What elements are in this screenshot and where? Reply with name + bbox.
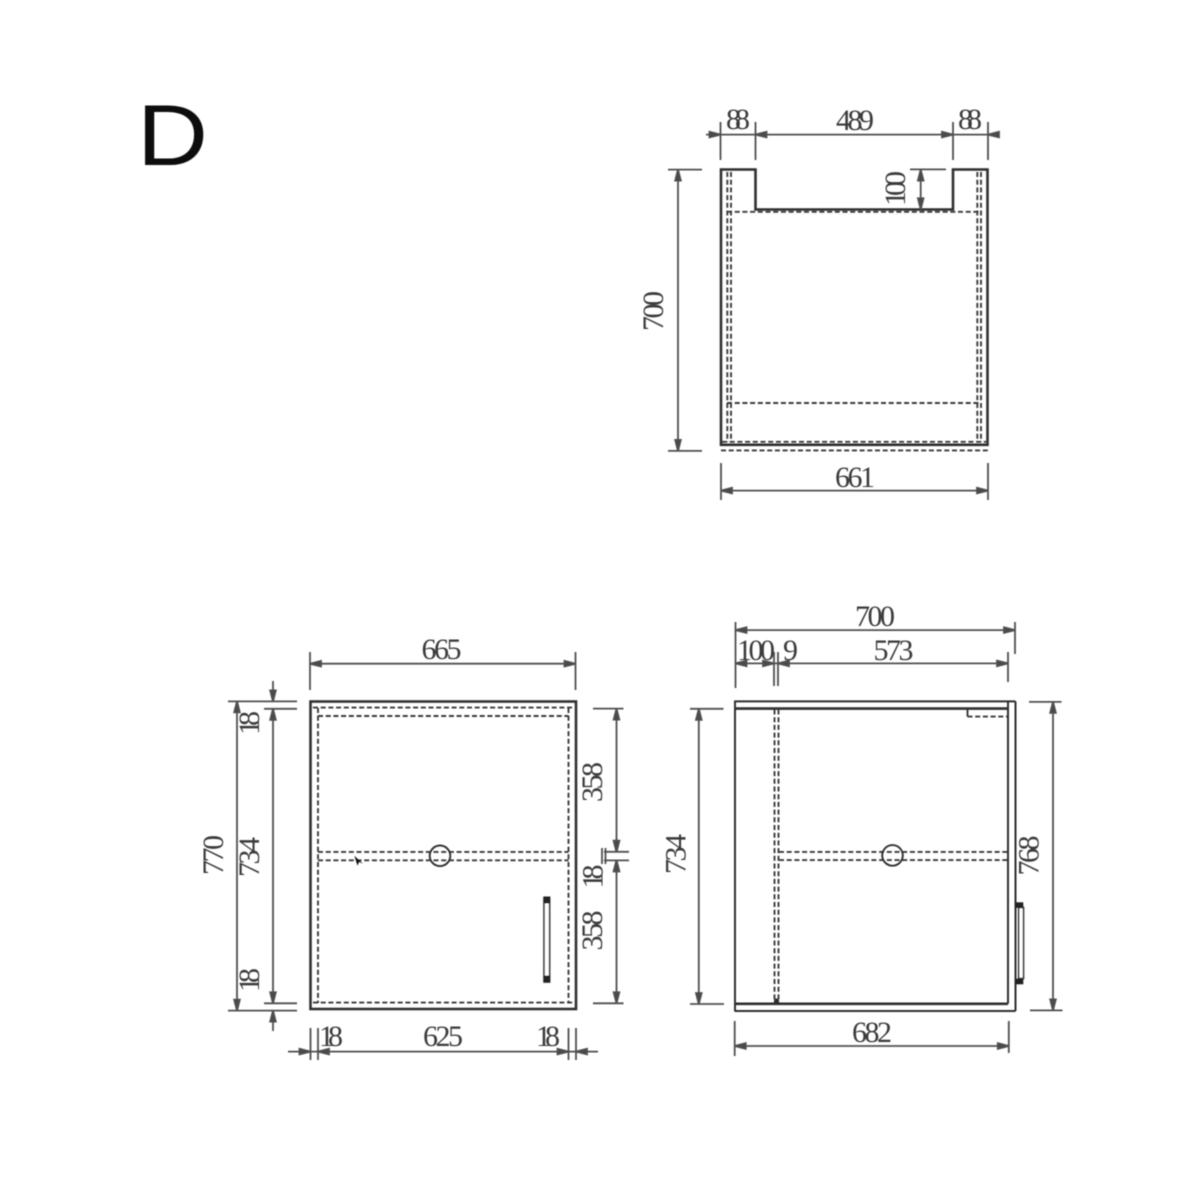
svg-text:D: D xyxy=(137,88,208,184)
svg-text:768: 768 xyxy=(1013,836,1046,876)
svg-text:573: 573 xyxy=(874,634,914,667)
svg-text:661: 661 xyxy=(835,461,875,494)
svg-text:18: 18 xyxy=(319,1020,343,1053)
svg-text:734: 734 xyxy=(660,834,693,874)
svg-text:700: 700 xyxy=(855,600,895,633)
svg-text:18: 18 xyxy=(233,968,266,992)
svg-text:100: 100 xyxy=(879,171,912,206)
svg-text:88: 88 xyxy=(958,103,982,136)
svg-text:700: 700 xyxy=(637,291,670,331)
svg-text:489: 489 xyxy=(836,104,874,137)
svg-text:625: 625 xyxy=(423,1020,463,1053)
svg-text:100: 100 xyxy=(737,634,775,667)
svg-text:9: 9 xyxy=(783,634,798,667)
svg-text:734: 734 xyxy=(233,837,266,877)
svg-text:770: 770 xyxy=(197,835,230,875)
svg-text:18: 18 xyxy=(577,865,610,889)
svg-text:358: 358 xyxy=(576,911,609,951)
svg-text:358: 358 xyxy=(576,762,609,802)
svg-text:18: 18 xyxy=(233,711,266,735)
svg-text:18: 18 xyxy=(536,1020,560,1053)
svg-text:88: 88 xyxy=(726,103,750,136)
svg-text:665: 665 xyxy=(422,633,462,666)
svg-text:682: 682 xyxy=(852,1016,892,1049)
